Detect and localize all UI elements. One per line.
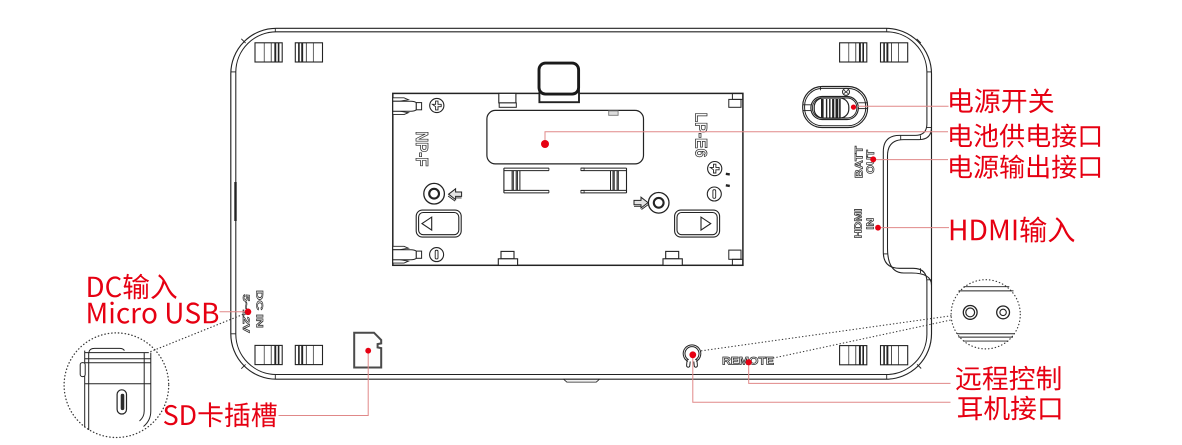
svg-text:LP-E6: LP-E6 xyxy=(691,113,709,158)
svg-text:HDMI: HDMI xyxy=(853,209,865,239)
svg-text:DC IN: DC IN xyxy=(253,290,264,328)
svg-text:NP-F: NP-F xyxy=(412,131,432,167)
svg-text:IN: IN xyxy=(864,218,876,230)
svg-text:OUT: OUT xyxy=(865,150,877,174)
svg-text:BATT: BATT xyxy=(853,146,865,178)
